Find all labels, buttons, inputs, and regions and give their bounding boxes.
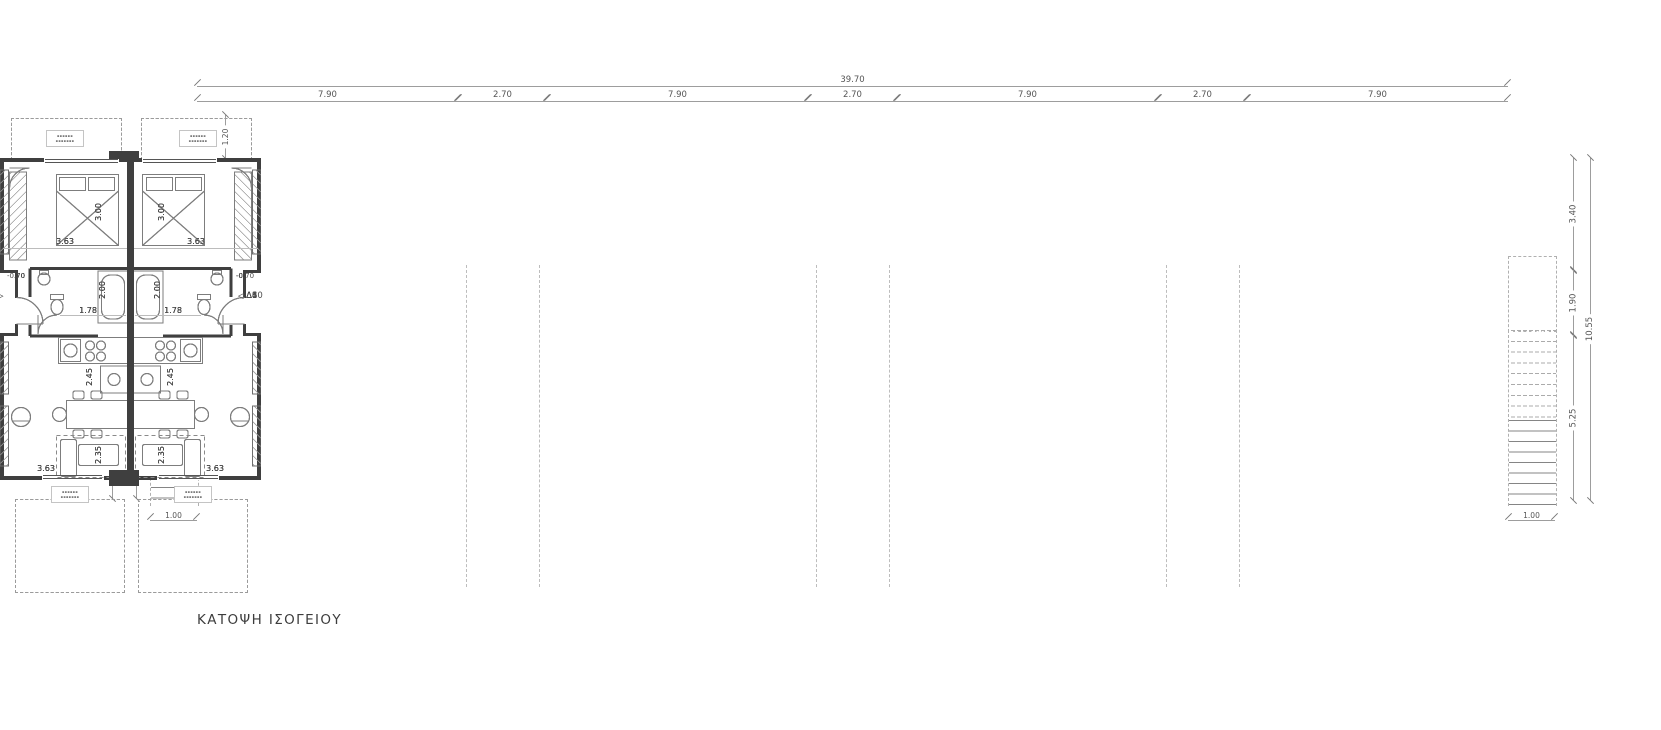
dim-label: 2.70 [840,90,865,100]
wardrobe [235,172,252,260]
stair-treads-upper [1509,330,1556,420]
dimension-line: 2.70 [1158,101,1247,102]
furniture [133,168,252,477]
window-tag-text: ▪▪▪▪▪▪▪ [184,495,203,500]
bed-length-dim: 3.00 [94,200,104,224]
bedroom-width-dim: 3.63 [53,237,77,247]
building-block: ▪▪▪▪▪▪ ▪▪▪▪▪▪▪ ▪▪▪▪▪▪ ▪▪▪▪▪▪▪ [0,105,261,605]
sofa-depth-dim: 2.35 [157,443,167,467]
door-label: Δ9 ▷ [0,291,3,301]
floor-plan-canvas: 39.70 7.90 2.70 7.90 2.70 7.90 2.70 7.90… [0,0,1661,730]
window-tag: ▪▪▪▪▪▪ ▪▪▪▪▪▪▪ [46,130,84,147]
dimension-line-stair-width: 1.00 [1508,520,1555,521]
furniture [10,168,129,477]
windows [43,160,118,479]
dim-label: 39.70 [837,75,867,85]
chair [53,408,67,422]
entry-level-marker: -0.70 [231,271,259,281]
living-width-dim: 3.63 [203,464,227,474]
kitchen-sink [64,344,77,357]
gap-dashed-line [539,265,540,587]
unit-floorplan-graphic [0,158,131,480]
dimension-line: 2.70 [808,101,897,102]
dim-label: 7.90 [315,90,340,100]
window-tag-text: ▪▪▪▪▪▪▪ [56,139,75,144]
door-label-text: Δ10 [246,291,263,301]
dimension-line: 7.90 [897,101,1158,102]
entry-arrow-icon: ◁ [238,292,243,300]
toilet [51,300,63,315]
dining-table [134,401,195,429]
dim-label: 7.90 [1015,90,1040,100]
dimension-line: 7.90 [547,101,808,102]
gap-dashed-line [816,265,817,587]
terrace-outline [15,499,125,593]
sofa-depth-dim: 2.35 [94,443,104,467]
window-tag-text: ▪▪▪▪▪▪▪ [189,139,208,144]
dimension-line: 7.90 [1247,101,1508,102]
dim-label: 10.55 [1585,314,1595,344]
sofa [61,440,77,477]
exterior-stair-right [1508,330,1557,506]
bedroom-width-dim: 3.63 [184,237,208,247]
stair-treads-lower [1509,420,1556,506]
dim-label: 2.70 [1190,90,1215,100]
window-tag: ▪▪▪▪▪▪ ▪▪▪▪▪▪▪ [51,486,89,503]
gap-dashed-line [889,265,890,587]
window-tag: ▪▪▪▪▪▪ ▪▪▪▪▪▪▪ [179,130,217,147]
gap-dashed-line [466,265,467,587]
party-wall [127,158,134,480]
dim-label: 2.70 [490,90,515,100]
party-wall-footing [109,470,139,486]
kitchen-depth-dim: 2.45 [166,365,176,389]
bath-depth-dim: 2.00 [98,278,108,302]
dim-label: 7.90 [665,90,690,100]
entry-door-arc [218,298,245,325]
unit-floorplan-graphic [130,158,261,480]
drawing-title: ΚΑΤΟΨΗ ΙΣΟΓΕΙΟΥ [197,612,342,628]
entry-arrow-icon: ▷ [0,292,3,300]
windows [143,160,218,479]
gap-dashed-line [1166,265,1167,587]
chair [195,408,209,422]
party-wall-stub [109,151,139,159]
wardrobe [10,172,27,260]
bath-depth-dim: 2.00 [153,278,163,302]
terrace-outline [138,499,248,593]
sofa [185,440,201,477]
dim-label: 1.00 [1520,511,1543,520]
window-tag-text: ▪▪▪▪▪▪▪ [61,495,80,500]
hall-width-dim: 1.78 [161,306,185,316]
armchair [231,408,250,427]
apartment-unit-left: 3.63 3.00 2.00 1.78 -0.70 2.45 2.35 3.63 [0,158,131,480]
apartment-unit-right: 3.63 3.00 2.00 1.78 -0.70 2.45 2.35 3.63 [130,158,261,480]
kitchen-sink [184,344,197,357]
kitchen-depth-dim: 2.45 [85,365,95,389]
dim-label: 7.90 [1365,90,1390,100]
door-label: ◁ Δ10 [238,291,263,301]
bed [143,175,205,246]
dim-label: 3.40 [1568,202,1578,227]
dim-label: 5.25 [1568,405,1578,430]
armchair [12,408,31,427]
dimension-line: 1.90 [1573,270,1574,335]
dim-label: 1.90 [1568,290,1578,315]
bed-length-dim: 3.00 [157,200,167,224]
dining-table [67,401,128,429]
dimension-line-total-width: 39.70 [197,86,1508,87]
dimension-line: 3.40 [1573,158,1574,270]
dimension-line: 2.70 [458,101,547,102]
dimension-line: 7.90 [197,101,458,102]
dimension-line-right-total: 10.55 [1590,158,1591,500]
porch-outline [1508,256,1557,332]
gap-dashed-line [1239,265,1240,587]
window-tag: ▪▪▪▪▪▪ ▪▪▪▪▪▪▪ [174,486,212,503]
living-width-dim: 3.63 [34,464,58,474]
toilet [198,300,210,315]
bed [57,175,119,246]
entry-door-arc [17,298,44,325]
dimension-line: 5.25 [1573,335,1574,500]
hall-width-dim: 1.78 [76,306,100,316]
living-area-outline [136,436,205,478]
entry-level-marker: -0.70 [2,271,30,281]
